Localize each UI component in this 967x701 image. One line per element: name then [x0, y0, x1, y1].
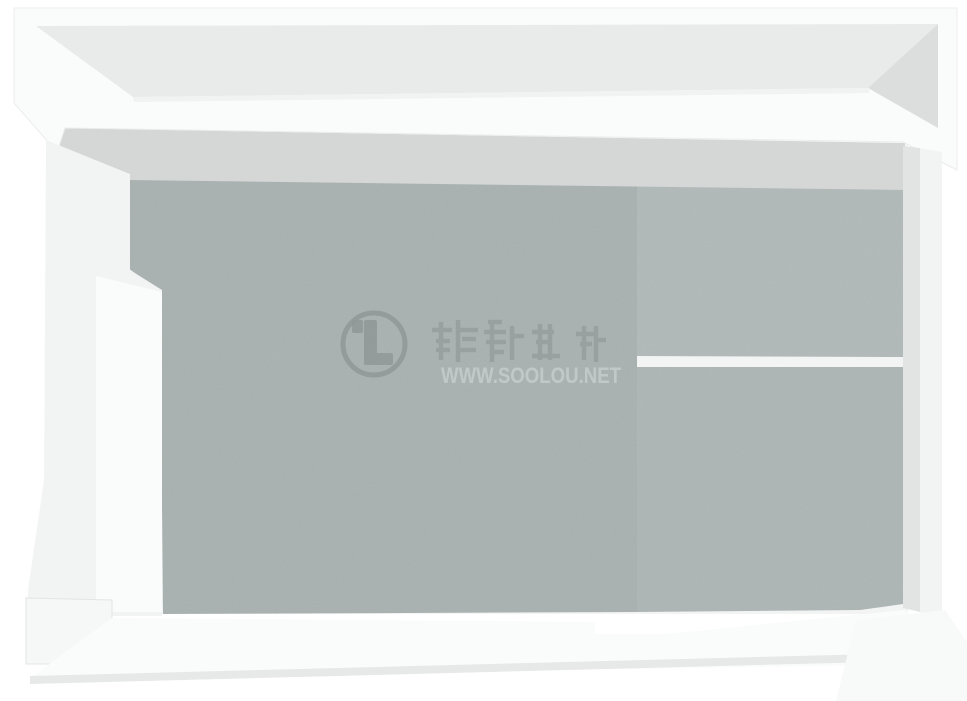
svg-text:WWW.SOOLOU.NET: WWW.SOOLOU.NET — [441, 363, 621, 388]
